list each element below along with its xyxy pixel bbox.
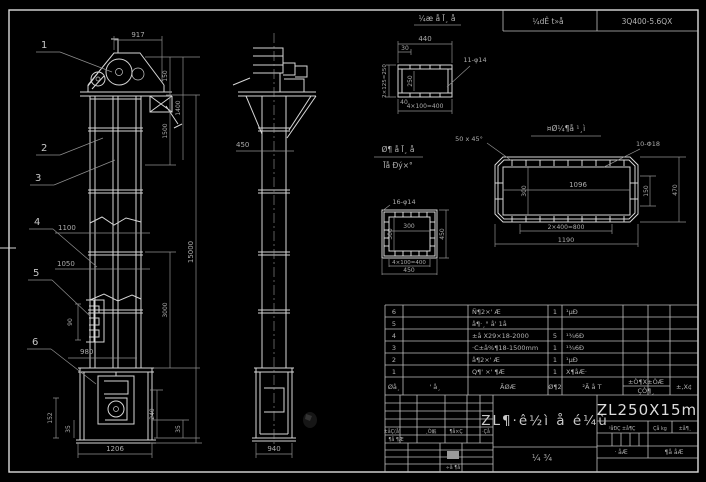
dim-base-1096: 1096 bbox=[569, 181, 587, 189]
title-strip: ¼dÊ t»å 3Q400-5.6QX bbox=[503, 10, 698, 31]
boot-takeup-circle bbox=[108, 401, 124, 417]
title-block: ±åÇ(å' ¸Ò嶯 ¶å×Ç ·Çå ¶å ¶Æ ÷å ¶å ZL¶·ê½ì … bbox=[384, 395, 698, 472]
dim-base-1190: 1190 bbox=[558, 236, 575, 244]
dim-plate-holes: 11-φ14 bbox=[463, 56, 486, 64]
detail-inlet-label-1: Ø¶ å Ī¸ å bbox=[382, 145, 415, 154]
cad-drawing-canvas: ¼dÊ t»å 3Q400-5.6QX 917 150 1400 1500 30… bbox=[0, 0, 706, 482]
dim-front-1050: 1050 bbox=[57, 260, 75, 268]
front-view: 917 150 1400 1500 3000 240 35 15000 1100… bbox=[47, 31, 202, 458]
dim-plate-250-inner: 250 bbox=[407, 75, 414, 87]
part-no: 3 bbox=[392, 344, 396, 352]
dim-front-35-left: 35 bbox=[65, 425, 72, 433]
sheet-total-label: · åÆ bbox=[614, 449, 627, 456]
part-name: Q¶' ×' ¶Æ bbox=[472, 368, 505, 376]
dim-side-bottom-width: 940 bbox=[267, 445, 280, 453]
dim-front-980: 980 bbox=[80, 348, 93, 356]
detail-head-plate: ¼æ å Ī¸ å 440 30 2×125=250 250 11-φ14 40… bbox=[382, 14, 487, 114]
boot-takeup-hub bbox=[114, 407, 119, 412]
model-number: ZL250X15m bbox=[597, 401, 697, 419]
dim-base-holes: 10-Φ18 bbox=[636, 140, 660, 148]
part-no: 1 bbox=[392, 368, 396, 376]
side-view-geometry bbox=[233, 48, 316, 441]
rev-col-count: ¸Ò嶯 bbox=[426, 428, 437, 435]
part-material: ¹µÐ bbox=[566, 308, 578, 316]
parts-header-no: Øå¸ bbox=[388, 382, 400, 391]
callout-2: 2 bbox=[41, 143, 47, 154]
stage-col-weight: Çå kg bbox=[653, 425, 667, 432]
dim-front-1500: 1500 bbox=[162, 123, 169, 138]
dim-base-800: 2×400=800 bbox=[548, 224, 585, 231]
part-name: ·C±å%¶18-1500mm bbox=[472, 343, 538, 352]
detail-inlet-label-2: Īå Ðý×° bbox=[383, 161, 413, 170]
side-view: 450 940 bbox=[233, 33, 316, 458]
dim-base-chamfer: 50 x 45° bbox=[455, 135, 483, 143]
approval-stamp bbox=[447, 451, 459, 459]
dim-front-152: 152 bbox=[47, 412, 54, 424]
part-qty: 5 bbox=[553, 332, 557, 340]
dim-side-450: 450 bbox=[236, 141, 249, 149]
part-no: 2 bbox=[392, 356, 396, 364]
dim-front-150: 150 bbox=[162, 70, 169, 82]
stamp-label: ÷å ¶å bbox=[446, 464, 461, 471]
callout-6: 6 bbox=[32, 337, 38, 348]
head-pulley-circle bbox=[106, 59, 132, 85]
dim-plate-440: 440 bbox=[418, 35, 431, 43]
dim-inlet-holes: 16-φ14 bbox=[392, 198, 415, 206]
detail-inlet-flange: Ø¶ å Ī¸ å Īå Ðý×° 16-φ14 300 300 450 4×1… bbox=[374, 145, 449, 275]
part-name: Ñ¶2×' Æ bbox=[472, 307, 501, 316]
part-no: 6 bbox=[392, 308, 396, 316]
callout-4: 4 bbox=[34, 217, 40, 228]
dim-front-bottom-width: 1206 bbox=[106, 445, 124, 453]
rev-col-sign: ·Çå bbox=[482, 428, 490, 435]
gear-circle bbox=[132, 68, 144, 80]
dim-front-top-width: 917 bbox=[131, 31, 144, 39]
motor-hub bbox=[96, 77, 100, 81]
parts-table: 6 Ñ¶2×' Æ 1 ¹µÐ 5 å¶·¸° å' 1å 4 ±å X29×1… bbox=[385, 305, 698, 395]
dim-inlet-400b: 4×100=400 bbox=[392, 260, 426, 266]
dim-plate-30: 30 bbox=[401, 45, 409, 52]
detail-base-title: ¤Ø¼¶å ¹¸ì bbox=[547, 124, 586, 133]
detail-base-dims bbox=[487, 143, 686, 247]
part-qty: 1 bbox=[553, 368, 557, 376]
dim-inlet-300w: 300 bbox=[403, 223, 415, 230]
parts-header-code: ' å¸ bbox=[429, 382, 440, 391]
dim-front-total-height: 15000 bbox=[187, 241, 195, 263]
sheet-characters: ¼ ¾ bbox=[532, 454, 553, 464]
document-label: ¼dÊ t»å bbox=[532, 17, 563, 26]
detail-base-flange: ¤Ø¼¶å ¹¸ì 50 x 45° 10-Φ18 1096 300 150 4… bbox=[455, 124, 686, 247]
dim-plate-250-left: 2×125=250 bbox=[382, 64, 388, 98]
callout-3: 3 bbox=[35, 173, 41, 184]
part-qty: 1 bbox=[553, 344, 557, 352]
border-frame bbox=[9, 10, 698, 472]
callout-5: 5 bbox=[33, 268, 39, 279]
dim-front-1100: 1100 bbox=[58, 224, 76, 232]
front-view-geometry bbox=[76, 39, 182, 443]
dim-base-150: 150 bbox=[643, 185, 650, 197]
part-name: å¶2×' Æ bbox=[472, 355, 500, 364]
stage-col-scale: ±å¶¸ bbox=[679, 425, 691, 432]
head-pulley-hub bbox=[116, 69, 123, 76]
parts-header-remark: ±,X¢ bbox=[676, 383, 692, 391]
parts-header-name: ÃØÆ bbox=[500, 382, 516, 391]
dim-inlet-450r: 450 bbox=[439, 228, 446, 240]
part-name: å¶·¸° å' 1å bbox=[472, 319, 507, 328]
rev-col-mark: ±åÇ(å' bbox=[384, 428, 400, 435]
parts-header-weight-bottom: ÇÒ¶¸ bbox=[637, 386, 654, 395]
part-material: ¹¾6Ð bbox=[566, 332, 584, 340]
parts-header-material: ²Ã å T bbox=[582, 382, 601, 391]
parts-header-qty: Ø¶2 bbox=[548, 383, 561, 391]
detail-head-plate-title: ¼æ å Ī¸ å bbox=[419, 14, 456, 23]
sheet-number-label: ¶å åÆ bbox=[665, 449, 684, 456]
rev-row2-label: ¶å ¶Æ bbox=[388, 436, 404, 443]
dim-front-240: 240 bbox=[149, 408, 156, 420]
drawing-title: ZL¶·ê½ì å é¼ù bbox=[481, 412, 609, 429]
part-no: 4 bbox=[392, 332, 396, 340]
part-no: 5 bbox=[392, 320, 396, 328]
dim-front-3000: 3000 bbox=[162, 302, 169, 317]
dim-front-1400: 1400 bbox=[175, 100, 182, 115]
dim-plate-400: 4×100=400 bbox=[407, 103, 444, 110]
cursor-smudge bbox=[303, 412, 317, 428]
part-material: ¹¾6Ð bbox=[566, 344, 584, 352]
part-material: X¶åÆ· bbox=[566, 367, 587, 376]
dim-inlet-300h: 300 bbox=[387, 228, 394, 240]
dim-inlet-450b: 450 bbox=[403, 267, 415, 274]
part-name: ±å X29×18-2000 bbox=[472, 331, 529, 340]
dim-front-90: 90 bbox=[67, 318, 74, 326]
part-qty: 1 bbox=[553, 356, 557, 364]
dim-front-35-right: 35 bbox=[175, 425, 182, 433]
part-qty: 1 bbox=[553, 308, 557, 316]
parts-header-weight-top: ±Ò¶X±ÒÆ bbox=[628, 377, 664, 386]
cad-drawing-page: ¼dÊ t»å 3Q400-5.6QX 917 150 1400 1500 30… bbox=[0, 0, 706, 482]
dim-base-300: 300 bbox=[521, 185, 528, 197]
document-number: 3Q400-5.6QX bbox=[622, 17, 673, 26]
part-material: ¹µÐ bbox=[566, 356, 578, 364]
callout-1: 1 bbox=[41, 40, 47, 51]
detail-base-geometry bbox=[495, 157, 638, 222]
dim-base-470: 470 bbox=[672, 184, 679, 196]
rev-col-zone: ¶å×Ç bbox=[449, 428, 463, 435]
stage-col-mark: ³åÐÇ ±å¶Ç bbox=[609, 425, 636, 432]
